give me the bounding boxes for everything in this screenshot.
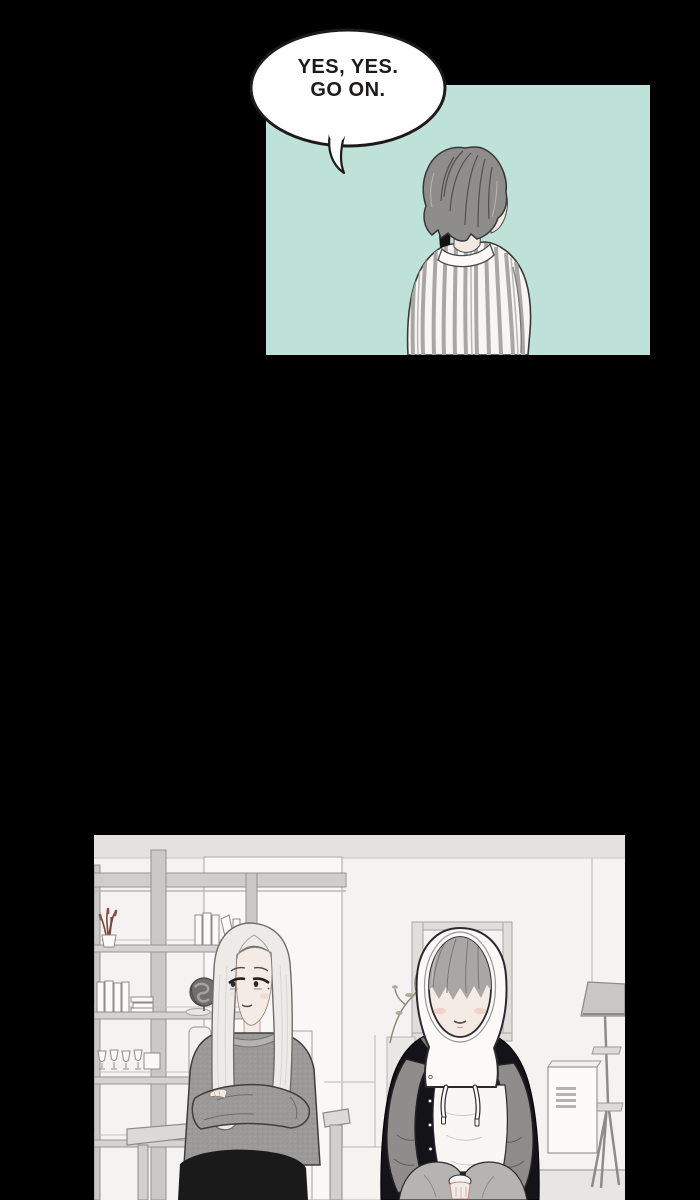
wall-top-strip — [94, 835, 625, 858]
nightstand — [548, 1061, 601, 1153]
woman-skirt — [178, 1150, 308, 1200]
room-scene — [94, 835, 625, 1200]
panel-room — [94, 835, 625, 1200]
sideboard-low — [340, 1147, 387, 1200]
boy-hands — [449, 1175, 471, 1199]
bubble-line-2: GO ON. — [268, 79, 428, 102]
comic-page: YES, YES. GO ON. — [0, 0, 700, 1200]
speech-bubble-text: YES, YES. GO ON. — [268, 56, 428, 102]
bubble-line-1: YES, YES. — [268, 56, 428, 79]
